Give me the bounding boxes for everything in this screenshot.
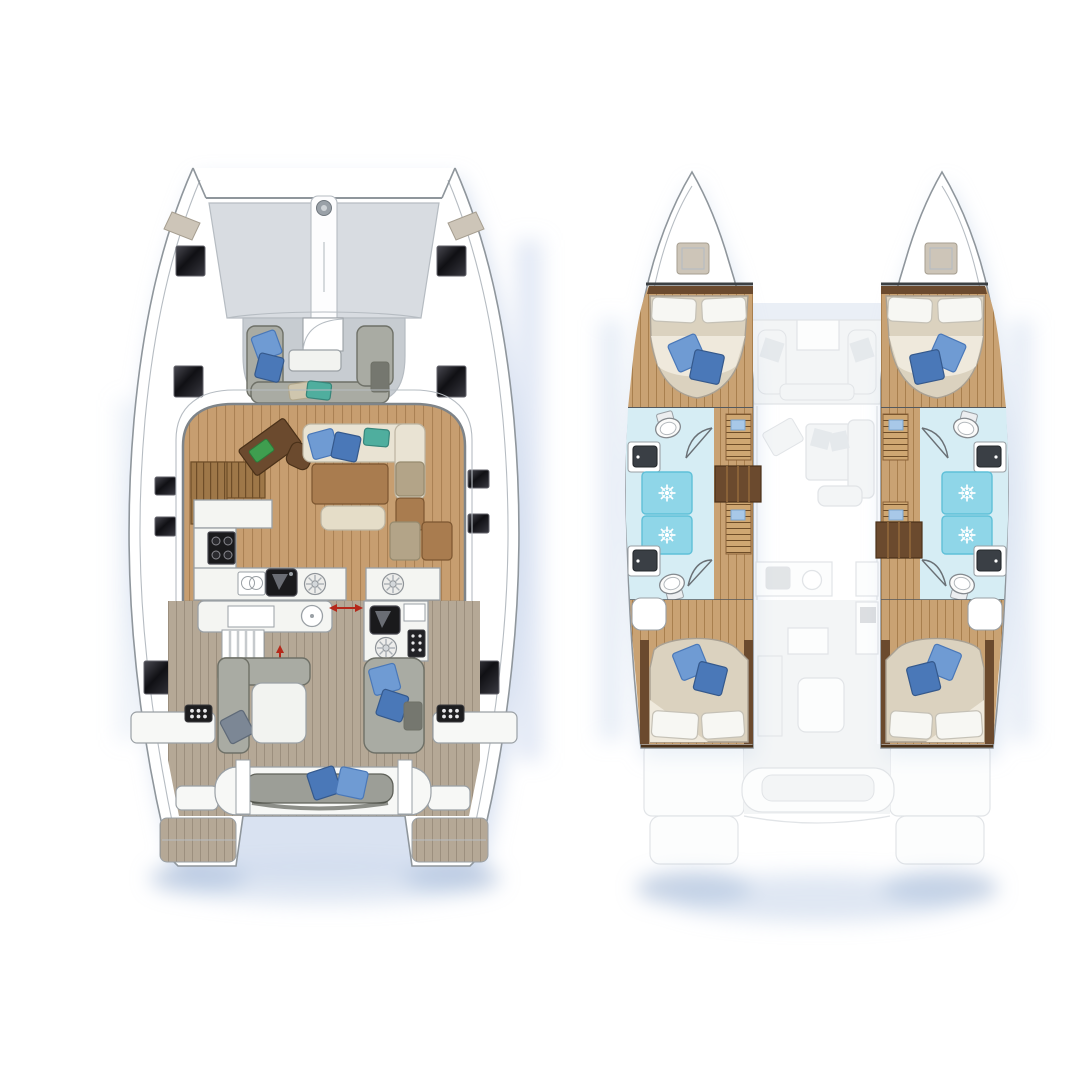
deck-plan-view (129, 168, 519, 866)
pillow (331, 432, 362, 463)
cockpit-table (252, 683, 306, 743)
stove-burner-icon (383, 574, 404, 595)
port-companionway-steps-icon (715, 466, 761, 502)
transom-step (236, 760, 250, 814)
deck-hatch-icon (468, 514, 489, 533)
engine-vent-grid-icon (437, 705, 464, 722)
salon-ottoman (321, 506, 385, 530)
deck-hatch-icon (155, 517, 176, 536)
cockpit-lounge-right (364, 658, 424, 753)
control-panel-icon (408, 630, 425, 657)
wet-bar (364, 601, 428, 661)
starboard-hull-plan (881, 172, 1008, 748)
deck-hatch-icon (176, 246, 205, 276)
starboard-companionway-steps-icon (876, 522, 922, 558)
salon-coffee-table (312, 464, 388, 504)
cockpit-steps (222, 630, 264, 659)
dish-rack-icon (238, 572, 265, 595)
cockpit-side-table (371, 362, 389, 392)
salon-cushion (396, 462, 424, 496)
forward-cockpit-table (289, 350, 341, 371)
pillow (363, 428, 389, 447)
deck-hatch-icon (437, 366, 466, 397)
deck-hatch-icon (468, 470, 489, 488)
cooktop-icon (208, 532, 235, 564)
deck-hatch-icon (437, 246, 466, 276)
stove-burner-icon (376, 638, 397, 659)
transom-step (398, 760, 412, 814)
deck-hatch-icon (155, 477, 176, 495)
pillow (335, 766, 368, 799)
accommodation-plan-view (626, 172, 1008, 864)
forward-cockpit-lounge (243, 318, 405, 404)
catamaran-floorplan-figure (0, 0, 1080, 1080)
engine-vent-grid-icon (185, 705, 212, 722)
salon-cushion (422, 522, 452, 560)
catamaran-floorplan-page (0, 0, 1080, 1080)
stove-burner-icon (305, 574, 326, 595)
pillow (254, 352, 284, 382)
salon-cushion (390, 522, 420, 560)
salon (176, 390, 472, 602)
aft-galley-counter (198, 601, 332, 632)
bow-trampoline (209, 196, 439, 334)
port-hull-plan (626, 172, 753, 748)
deck-hatch-icon (174, 366, 203, 397)
